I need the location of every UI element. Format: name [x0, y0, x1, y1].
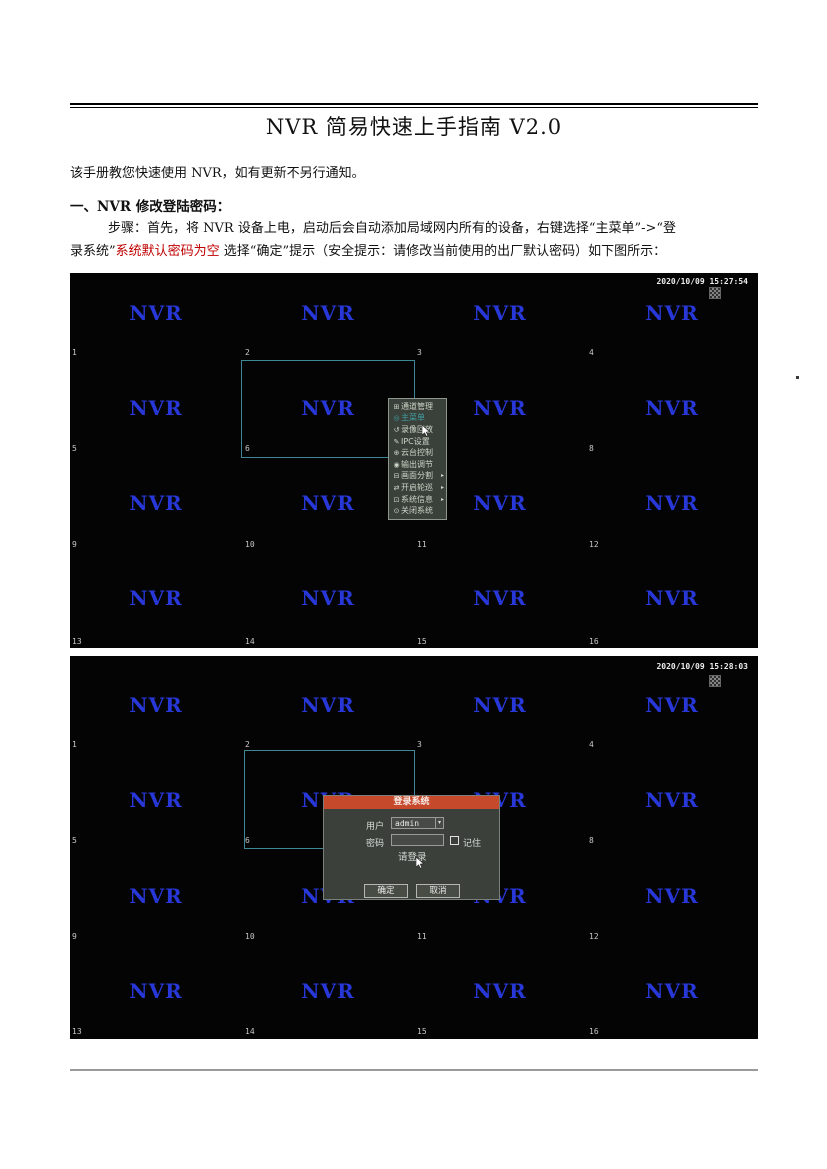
main-menu-icon: ◎ — [392, 414, 401, 422]
channel-tile-label[interactable]: NVR — [645, 979, 698, 1003]
step-text-line2-pre: 录系统” — [70, 244, 116, 259]
dropdown-caret-icon[interactable]: ▾ — [435, 818, 443, 828]
channel-number: 1 — [72, 349, 77, 357]
channel-tile-label[interactable]: NVR — [645, 301, 698, 325]
channel-tile-label[interactable]: NVR — [129, 693, 182, 717]
menu-item-ipc-settings[interactable]: ✎IPC设置 — [389, 436, 446, 447]
channel-tile-label[interactable]: NVR — [473, 396, 526, 420]
channel-tile-label[interactable]: NVR — [129, 884, 182, 908]
channel-tile-label[interactable]: NVR — [473, 491, 526, 515]
channel-number: 4 — [589, 741, 594, 749]
step-text-line2-post: 选择“确定”提示（安全提示：请修改当前使用的出厂默认密码）如下图所示： — [220, 244, 666, 259]
channel-number: 16 — [589, 1028, 599, 1036]
system-info-icon: ⊡ — [392, 496, 401, 504]
channel-number: 13 — [72, 638, 82, 646]
channel-tile-label[interactable]: NVR — [129, 586, 182, 610]
ipc-settings-icon: ✎ — [392, 438, 401, 446]
channel-number: 9 — [72, 541, 77, 549]
channel-tile-label[interactable]: NVR — [645, 491, 698, 515]
channel-number: 14 — [245, 1028, 255, 1036]
channel-number: 13 — [72, 1028, 82, 1036]
channel-number: 14 — [245, 638, 255, 646]
title-divider — [70, 103, 758, 108]
password-label: 密码 — [366, 836, 384, 849]
submenu-arrow-icon: ▸ — [441, 496, 444, 504]
channel-number: 3 — [417, 349, 422, 357]
screen-split-icon: ⊟ — [392, 472, 401, 480]
login-dialog-title: 登录系统 — [324, 796, 499, 809]
nvr-screenshot-2: 2020/10/09 15:28:03 NVR NVR NVR NVR NVR … — [70, 656, 758, 1039]
default-password-red-note: 系统默认密码为空 — [116, 244, 220, 259]
remember-label: 记住 — [463, 836, 481, 849]
channel-number: 11 — [417, 933, 427, 941]
channel-tile-label[interactable]: NVR — [129, 301, 182, 325]
channel-number: 15 — [417, 638, 427, 646]
login-dialog: 登录系统 用户 admin ▾ 密码 记住 请登录 确定 取消 — [323, 795, 500, 900]
stray-mark — [796, 376, 799, 379]
channel-tile-label[interactable]: NVR — [301, 979, 354, 1003]
menu-item-start-tour[interactable]: ⇄开启轮巡▸ — [389, 482, 446, 493]
channel-number: 10 — [245, 933, 255, 941]
step-text-line2: 录系统”系统默认密码为空 选择“确定”提示（安全提示：请修改当前使用的出厂默认密… — [70, 240, 762, 259]
start-tour-icon: ⇄ — [392, 484, 401, 492]
user-dropdown[interactable]: admin ▾ — [391, 817, 444, 829]
step-text-line1: 步骤：首先，将 NVR 设备上电，启动后会自动添加局域网内所有的设备，右键选择“… — [70, 217, 762, 236]
channel-number: 3 — [417, 741, 422, 749]
channel-tile-label[interactable]: NVR — [645, 693, 698, 717]
channel-number: 11 — [417, 541, 427, 549]
channel-tile-label[interactable]: NVR — [129, 491, 182, 515]
channel-number: 12 — [589, 933, 599, 941]
channel-tile-label[interactable]: NVR — [129, 979, 182, 1003]
submenu-arrow-icon: ▸ — [441, 472, 444, 480]
channel-tile-label[interactable]: NVR — [645, 586, 698, 610]
channel-tile-label[interactable]: NVR — [129, 788, 182, 812]
channel-number: 5 — [72, 837, 77, 845]
channel-number: 16 — [589, 638, 599, 646]
menu-item-output-adjust[interactable]: ◉输出调节 — [389, 459, 446, 470]
timestamp: 2020/10/09 15:28:03 — [656, 662, 748, 671]
channel-tile-label[interactable]: NVR — [473, 586, 526, 610]
playback-icon: ↺ — [392, 426, 401, 434]
channel-number: 1 — [72, 741, 77, 749]
right-click-context-menu: ⊞通道管理 ◎主菜单 ↺录像回放 ✎IPC设置 ⊕云台控制 ◉输出调节 ⊟画面分… — [388, 398, 447, 520]
remember-checkbox[interactable] — [450, 836, 459, 845]
qr-code-icon — [709, 675, 721, 687]
channel-tile-label[interactable]: NVR — [473, 693, 526, 717]
nvr-screenshot-1: 2020/10/09 15:27:54 NVR NVR NVR NVR NVR … — [70, 273, 758, 648]
channel-number: 15 — [417, 1028, 427, 1036]
channel-tile-label[interactable]: NVR — [129, 396, 182, 420]
document-page: NVR 简易快速上手指南 V2.0 该手册教您快速使用 NVR，如有更新不另行通… — [0, 0, 827, 1169]
channel-tile-label[interactable]: NVR — [301, 693, 354, 717]
user-dropdown-value: admin — [395, 819, 419, 828]
qr-code-icon — [709, 287, 721, 299]
page-title: NVR 简易快速上手指南 V2.0 — [70, 111, 758, 141]
channel-tile-label[interactable]: NVR — [645, 884, 698, 908]
menu-item-channel-manage[interactable]: ⊞通道管理 — [389, 401, 446, 412]
channel-number: 4 — [589, 349, 594, 357]
channel-number: 9 — [72, 933, 77, 941]
channel-number: 8 — [589, 445, 594, 453]
menu-item-shutdown[interactable]: ⊙关闭系统 — [389, 506, 446, 517]
user-label: 用户 — [366, 819, 384, 832]
menu-item-screen-split[interactable]: ⊟画面分割▸ — [389, 471, 446, 482]
menu-item-ptz-control[interactable]: ⊕云台控制 — [389, 448, 446, 459]
channel-tile-label[interactable]: NVR — [301, 301, 354, 325]
channel-number: 5 — [72, 445, 77, 453]
channel-number: 8 — [589, 837, 594, 845]
channel-number: 10 — [245, 541, 255, 549]
footer-divider — [70, 1069, 758, 1071]
channel-tile-label[interactable]: NVR — [473, 979, 526, 1003]
channel-manage-icon: ⊞ — [392, 403, 401, 411]
channel-number: 12 — [589, 541, 599, 549]
cancel-button[interactable]: 取消 — [416, 884, 460, 898]
timestamp: 2020/10/09 15:27:54 — [656, 277, 748, 286]
menu-item-playback[interactable]: ↺录像回放 — [389, 424, 446, 435]
section-heading: 一、NVR 修改登陆密码： — [70, 195, 760, 215]
channel-tile-label[interactable]: NVR — [645, 788, 698, 812]
channel-number: 2 — [245, 741, 250, 749]
mouse-cursor-icon — [422, 425, 431, 437]
ptz-control-icon: ⊕ — [392, 449, 401, 457]
channel-tile-label[interactable]: NVR — [473, 301, 526, 325]
submenu-arrow-icon: ▸ — [441, 484, 444, 492]
output-adjust-icon: ◉ — [392, 461, 401, 469]
power-icon: ⊙ — [392, 507, 401, 515]
channel-tile-label[interactable]: NVR — [301, 491, 354, 515]
channel-number: 2 — [245, 349, 250, 357]
menu-item-system-info[interactable]: ⊡系统信息▸ — [389, 494, 446, 505]
password-field-wrap — [391, 834, 444, 846]
mouse-cursor-icon — [416, 857, 425, 869]
intro-text: 该手册教您快速使用 NVR，如有更新不另行通知。 — [70, 162, 760, 181]
menu-item-main-menu[interactable]: ◎主菜单 — [389, 413, 446, 424]
ok-button[interactable]: 确定 — [364, 884, 408, 898]
channel-tile-label[interactable]: NVR — [301, 586, 354, 610]
channel-tile-label[interactable]: NVR — [645, 396, 698, 420]
